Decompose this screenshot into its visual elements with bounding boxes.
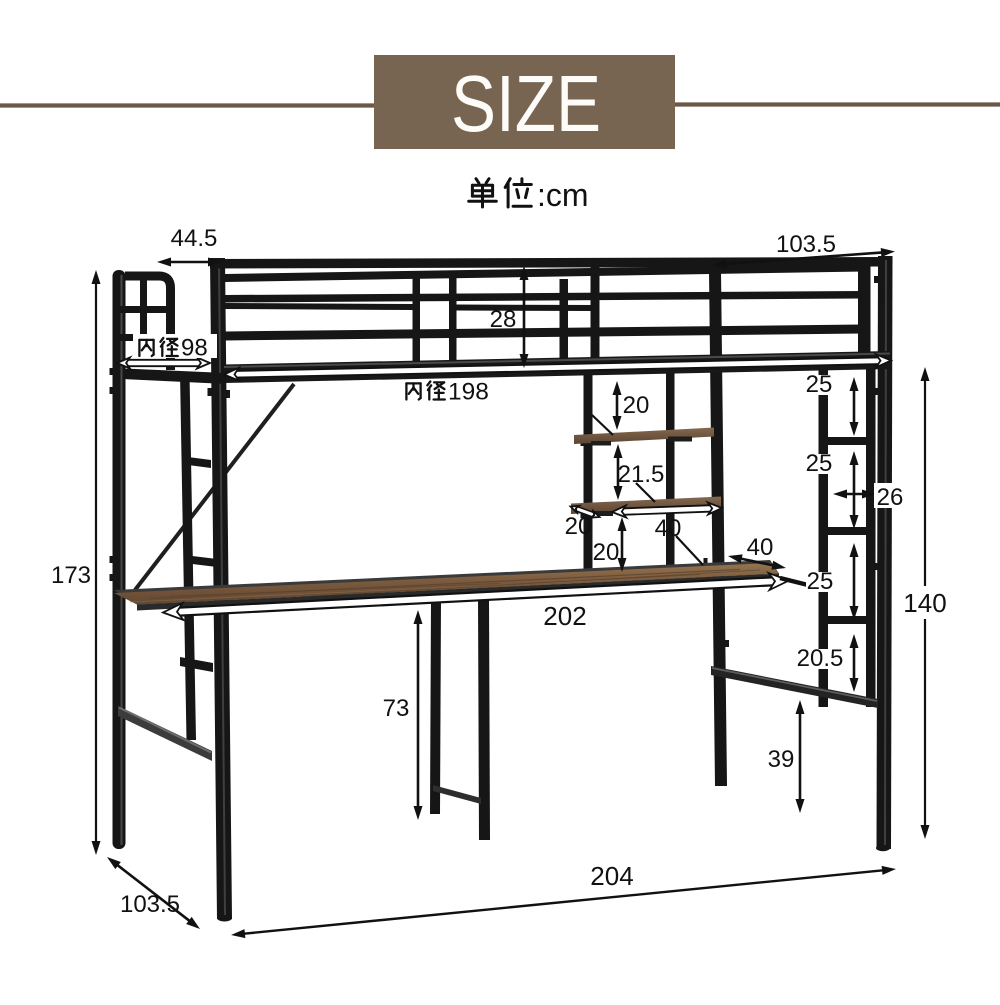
svg-text:40: 40: [747, 534, 774, 561]
svg-text:21.5: 21.5: [618, 461, 665, 488]
svg-text::cm: :cm: [537, 177, 589, 213]
svg-text:204: 204: [590, 861, 633, 891]
svg-text:20: 20: [623, 392, 650, 419]
svg-text:25: 25: [806, 450, 833, 477]
svg-text:73: 73: [383, 695, 410, 722]
svg-text:198: 198: [448, 379, 489, 406]
svg-text:39: 39: [768, 746, 795, 773]
svg-text:20.5: 20.5: [797, 645, 844, 672]
svg-text:SIZE: SIZE: [451, 59, 601, 148]
svg-text:173: 173: [51, 562, 91, 589]
svg-text:44.5: 44.5: [171, 225, 218, 252]
svg-text:140: 140: [903, 588, 946, 618]
svg-text:20: 20: [565, 513, 592, 540]
svg-text:26: 26: [877, 484, 904, 511]
svg-text:25: 25: [807, 568, 834, 595]
svg-text:20: 20: [593, 539, 620, 566]
svg-text:103.5: 103.5: [120, 891, 180, 918]
svg-text:202: 202: [543, 601, 586, 631]
svg-text:98: 98: [181, 335, 208, 362]
svg-text:25: 25: [806, 371, 833, 398]
svg-text:28: 28: [490, 306, 517, 333]
svg-text:40: 40: [655, 515, 682, 542]
svg-text:103.5: 103.5: [776, 231, 836, 258]
